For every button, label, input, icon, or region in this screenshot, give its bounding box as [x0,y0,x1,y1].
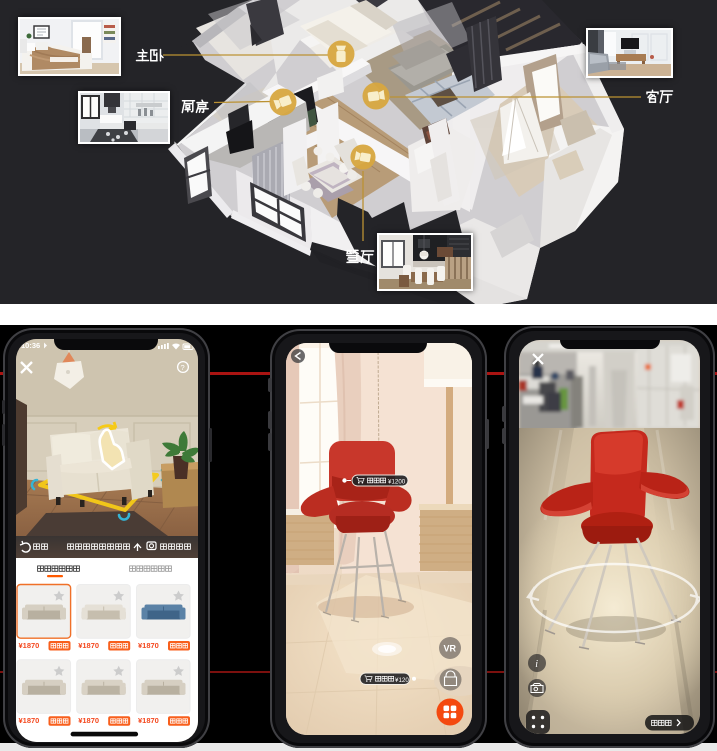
svg-text:¥120: ¥120 [395,676,409,683]
svg-text:¥1870: ¥1870 [19,716,40,725]
svg-text:¥1870: ¥1870 [19,641,40,650]
svg-text:¥1870: ¥1870 [78,716,99,725]
svg-text:¥1870: ¥1870 [138,716,159,725]
svg-text:¥1870: ¥1870 [138,641,159,650]
svg-text:i: i [535,659,538,670]
svg-text:¥1200: ¥1200 [388,478,406,485]
svg-text:10:36: 10:36 [21,341,40,350]
svg-text:VR: VR [444,643,457,653]
svg-text:?: ? [181,363,185,372]
svg-text:¥1870: ¥1870 [78,641,99,650]
